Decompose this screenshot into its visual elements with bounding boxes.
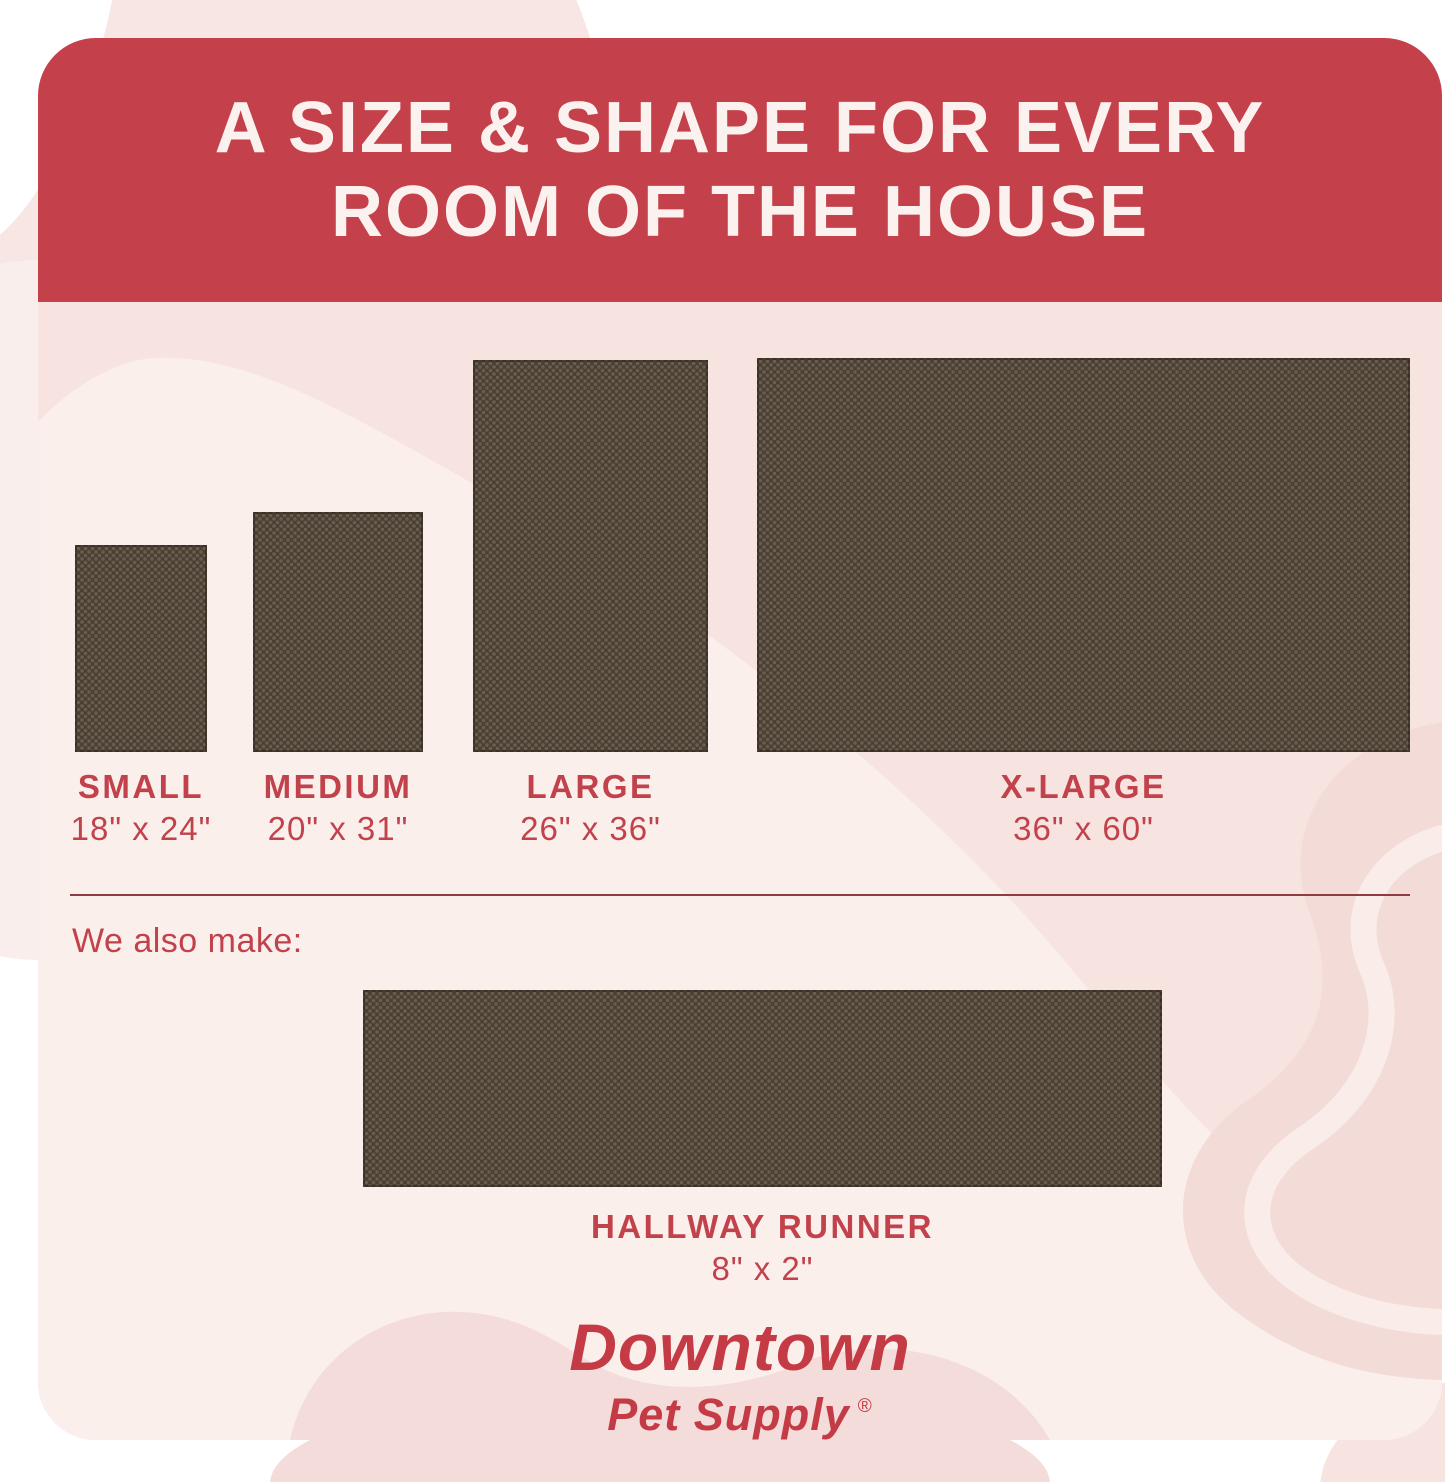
brand-tagline: Pet Supply®	[38, 1382, 1442, 1440]
size-dimensions: 20" x 31"	[208, 810, 468, 848]
brand-name: Downtown	[38, 1314, 1442, 1380]
title-line-1: A SIZE & SHAPE FOR EVERY	[215, 86, 1266, 170]
size-name: X-LARGE	[757, 768, 1410, 806]
size-dimensions: 36" x 60"	[757, 810, 1410, 848]
rug-size-infographic: A SIZE & SHAPE FOR EVERY ROOM OF THE HOU…	[0, 0, 1445, 1482]
size-name: LARGE	[443, 768, 738, 806]
brand-tagline-text: Pet Supply	[607, 1389, 850, 1440]
header-banner: A SIZE & SHAPE FOR EVERY ROOM OF THE HOU…	[38, 38, 1442, 302]
rug-swatch-large	[473, 360, 708, 752]
also-make-label: We also make:	[72, 922, 303, 961]
size-dimensions: 26" x 36"	[443, 810, 738, 848]
size-name: MEDIUM	[208, 768, 468, 806]
rug-swatch-small	[75, 545, 207, 752]
size-label-xlarge: X-LARGE 36" x 60"	[757, 768, 1410, 848]
registered-trademark-symbol: ®	[858, 1396, 873, 1417]
size-dimensions: 8" x 2"	[363, 1250, 1162, 1288]
size-name: HALLWAY RUNNER	[363, 1208, 1162, 1246]
title-line-2: ROOM OF THE HOUSE	[215, 170, 1266, 254]
brand-logo: Downtown Pet Supply®	[38, 1314, 1442, 1440]
page-title: A SIZE & SHAPE FOR EVERY ROOM OF THE HOU…	[215, 86, 1266, 254]
size-diagram: SMALL 18" x 24" MEDIUM 20" x 31" LARGE 2…	[38, 302, 1442, 1440]
rug-swatch-hallway-runner	[363, 990, 1162, 1187]
size-label-medium: MEDIUM 20" x 31"	[208, 768, 468, 848]
rug-swatch-medium	[253, 512, 423, 752]
size-label-hallway-runner: HALLWAY RUNNER 8" x 2"	[363, 1208, 1162, 1288]
size-label-large: LARGE 26" x 36"	[443, 768, 738, 848]
rug-swatch-xlarge	[757, 358, 1410, 752]
divider-line	[70, 894, 1410, 896]
info-card: A SIZE & SHAPE FOR EVERY ROOM OF THE HOU…	[38, 38, 1442, 1440]
